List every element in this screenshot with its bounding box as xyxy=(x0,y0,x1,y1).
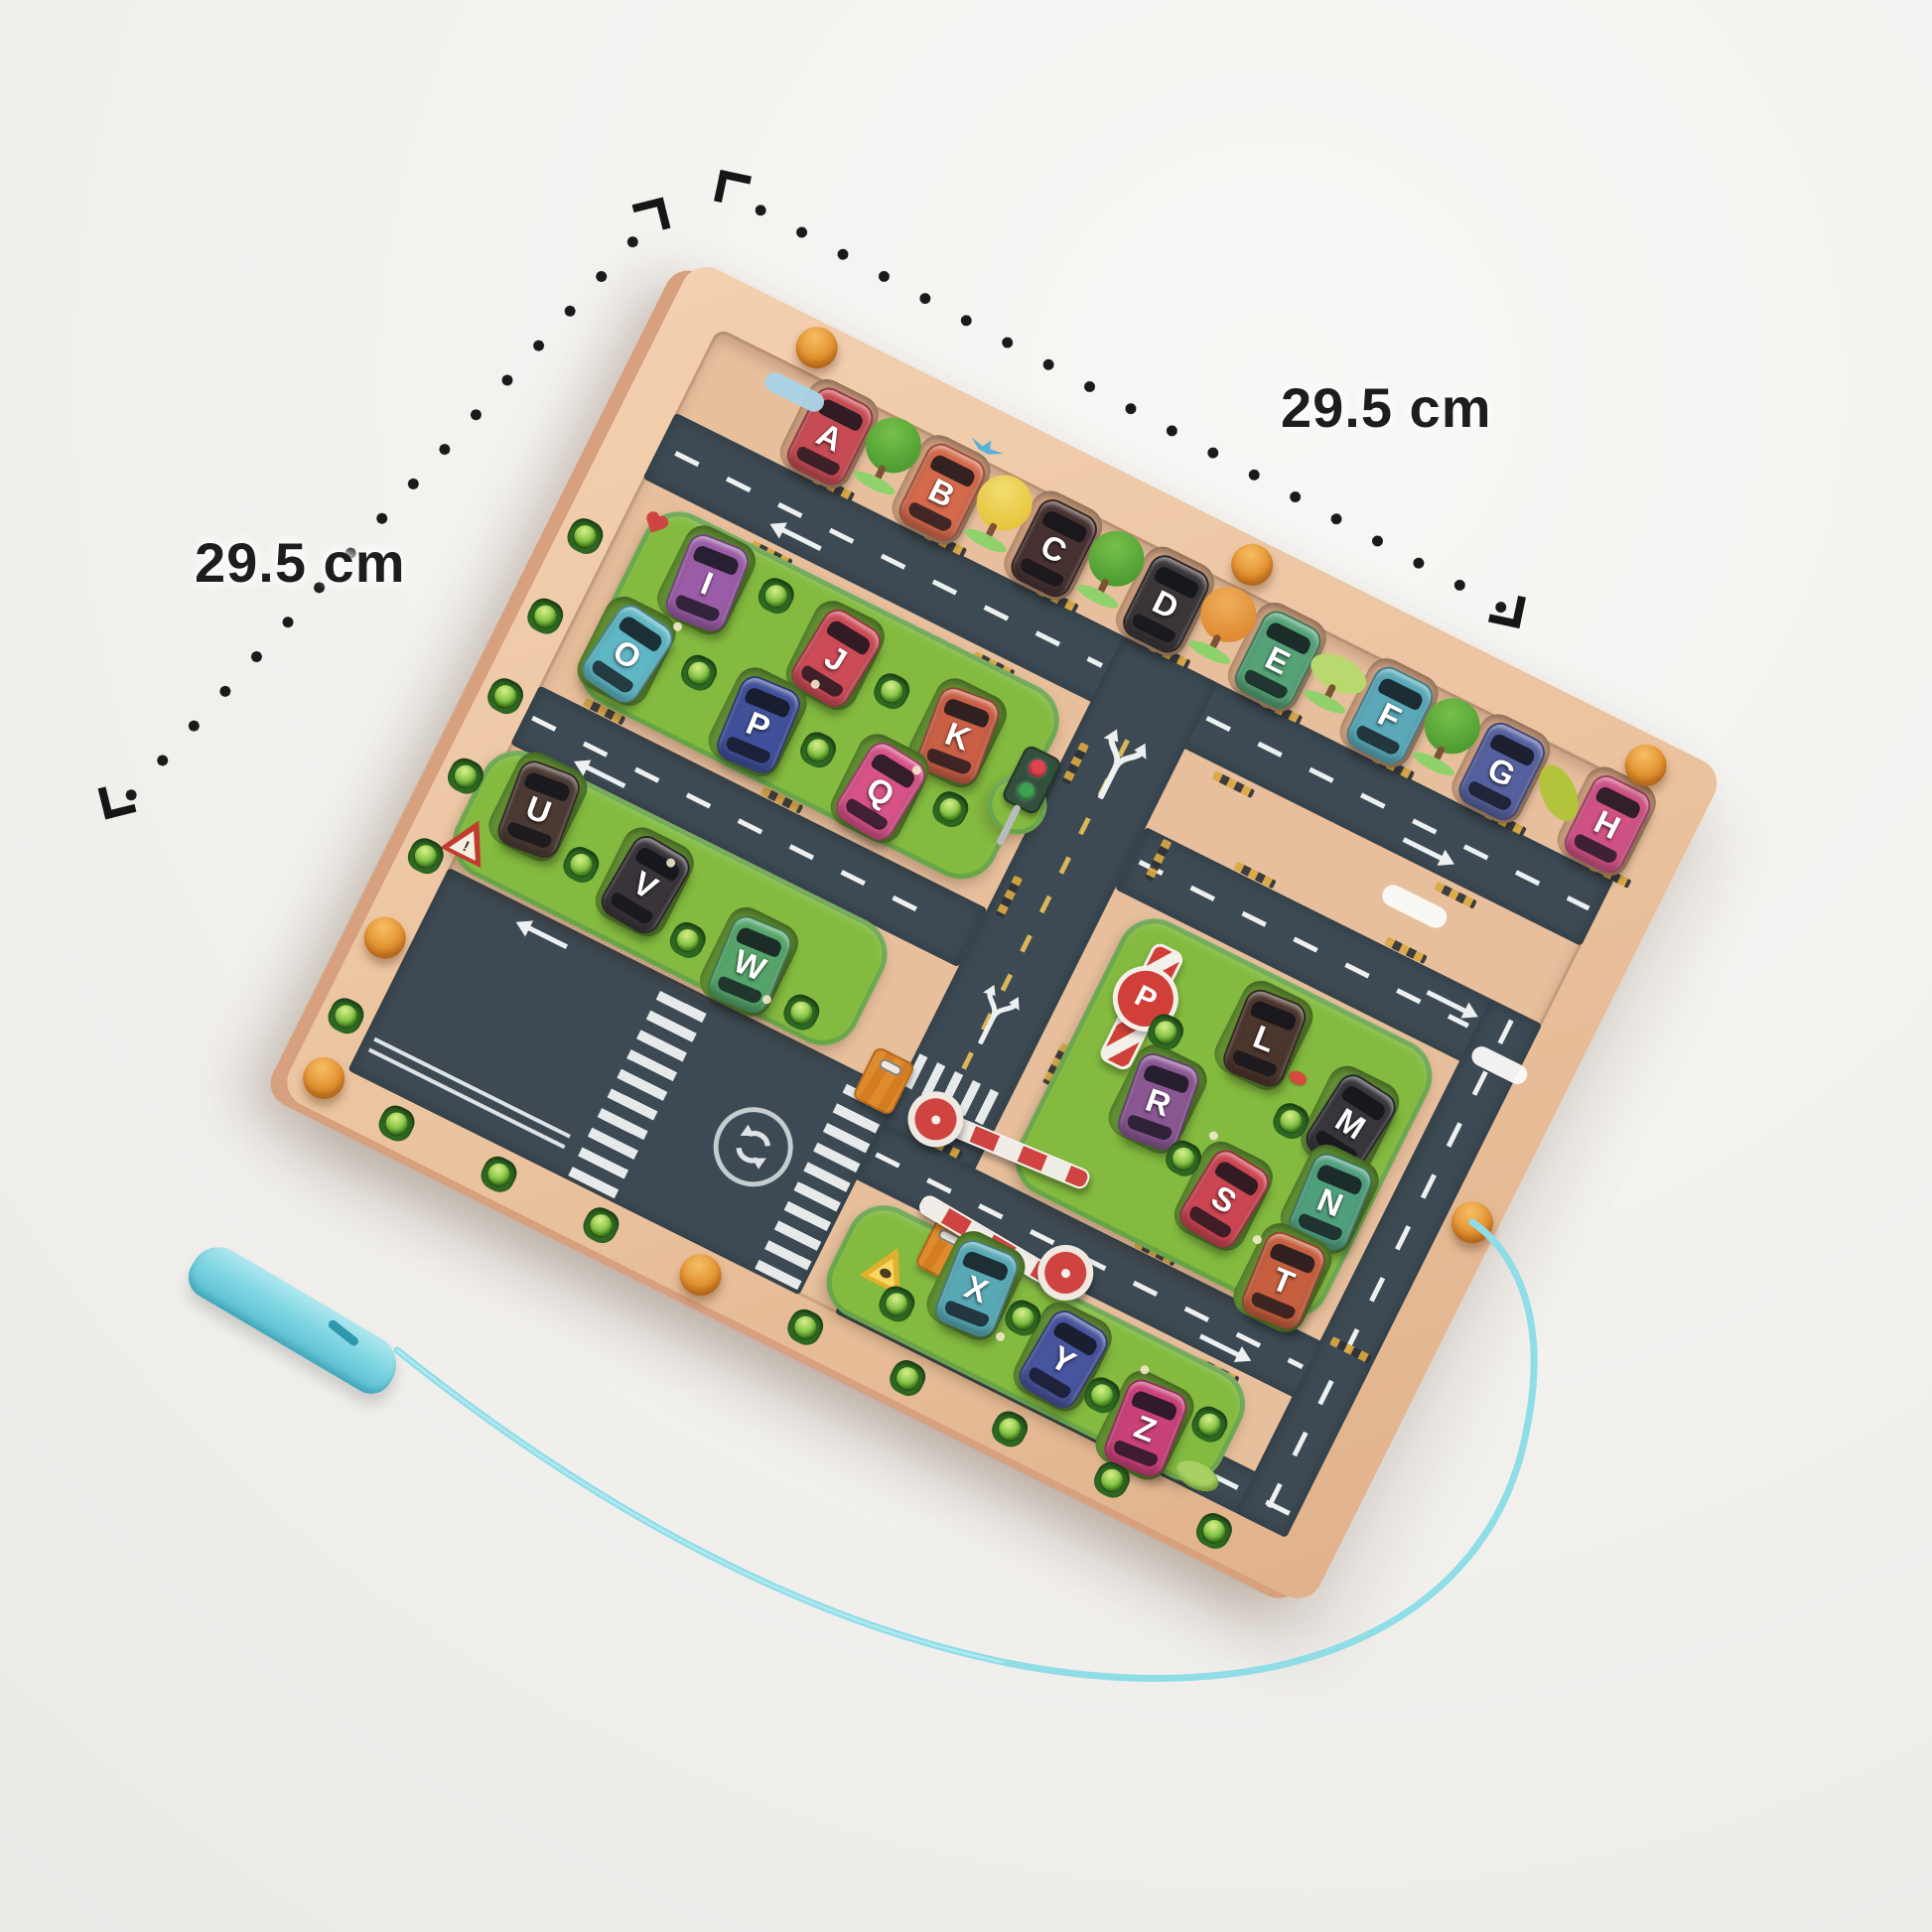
product-photo-scene: P!ABCDEFGHIJKLMNOPQRSTUVWXYZ 29.5 cm 29.… xyxy=(0,0,1932,1932)
pen-string xyxy=(0,0,1932,1932)
